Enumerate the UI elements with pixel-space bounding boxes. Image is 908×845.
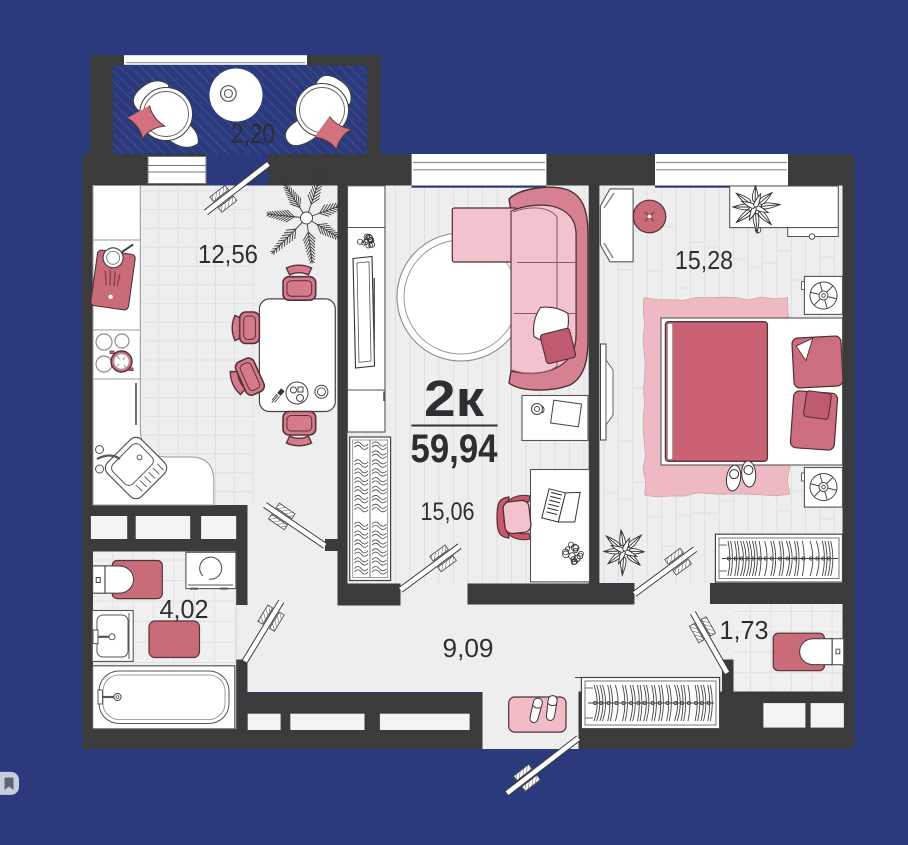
svg-text:2к: 2к (424, 370, 485, 427)
svg-text:9,09: 9,09 (443, 633, 494, 663)
svg-text:12,56: 12,56 (198, 239, 258, 269)
svg-text:15,06: 15,06 (421, 498, 475, 526)
svg-text:59,94: 59,94 (411, 427, 499, 471)
svg-text:1,73: 1,73 (720, 615, 769, 645)
svg-text:4,02: 4,02 (160, 594, 209, 624)
svg-text:15,28: 15,28 (675, 245, 733, 275)
svg-text:2,20: 2,20 (231, 118, 275, 149)
